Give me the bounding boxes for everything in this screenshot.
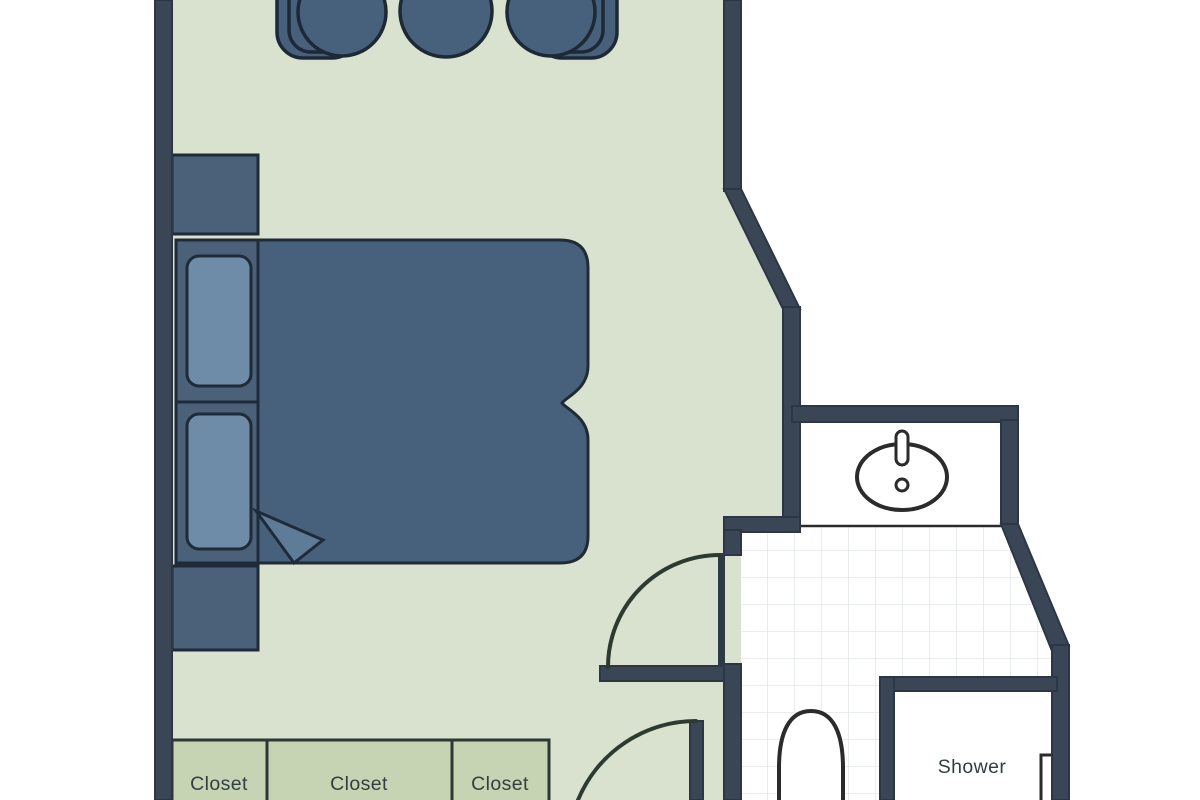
- wall-shower-left: [880, 677, 894, 800]
- wall-bath-door-stub: [600, 666, 725, 681]
- wall-right-upper: [724, 0, 741, 191]
- closet-3-label: Closet: [471, 773, 529, 795]
- wall-vanity-right: [1001, 420, 1018, 526]
- sink-drain: [896, 479, 908, 491]
- wall-vanity-top: [792, 406, 1018, 422]
- nightstand-bottom: [172, 566, 258, 650]
- closet-2-label: Closet: [330, 773, 388, 795]
- shower-label: Shower: [938, 756, 1007, 778]
- bathroom-door-leaf: [718, 553, 725, 667]
- floor-plan-canvas: Closet Closet Closet Shower: [0, 0, 1200, 800]
- sink-faucet: [896, 431, 908, 465]
- toilet-bowl: [779, 711, 843, 800]
- wall-shower-top: [880, 677, 1057, 691]
- closet-1-label: Closet: [190, 773, 248, 795]
- wall-partition-lower: [724, 664, 741, 800]
- bed: [258, 240, 588, 563]
- shower-room-floor: [888, 685, 1057, 800]
- pillow-bottom: [187, 414, 251, 549]
- chair-group: [277, 0, 617, 58]
- nightstand-top: [172, 155, 258, 234]
- wall-right-lower: [1052, 645, 1069, 800]
- floor-plan-svg: Closet Closet Closet Shower: [0, 0, 1200, 800]
- entry-door-leaf: [690, 721, 703, 800]
- wall-above-bath-door: [724, 530, 741, 555]
- pillow-top: [187, 256, 251, 386]
- wall-left-exterior: [155, 0, 172, 800]
